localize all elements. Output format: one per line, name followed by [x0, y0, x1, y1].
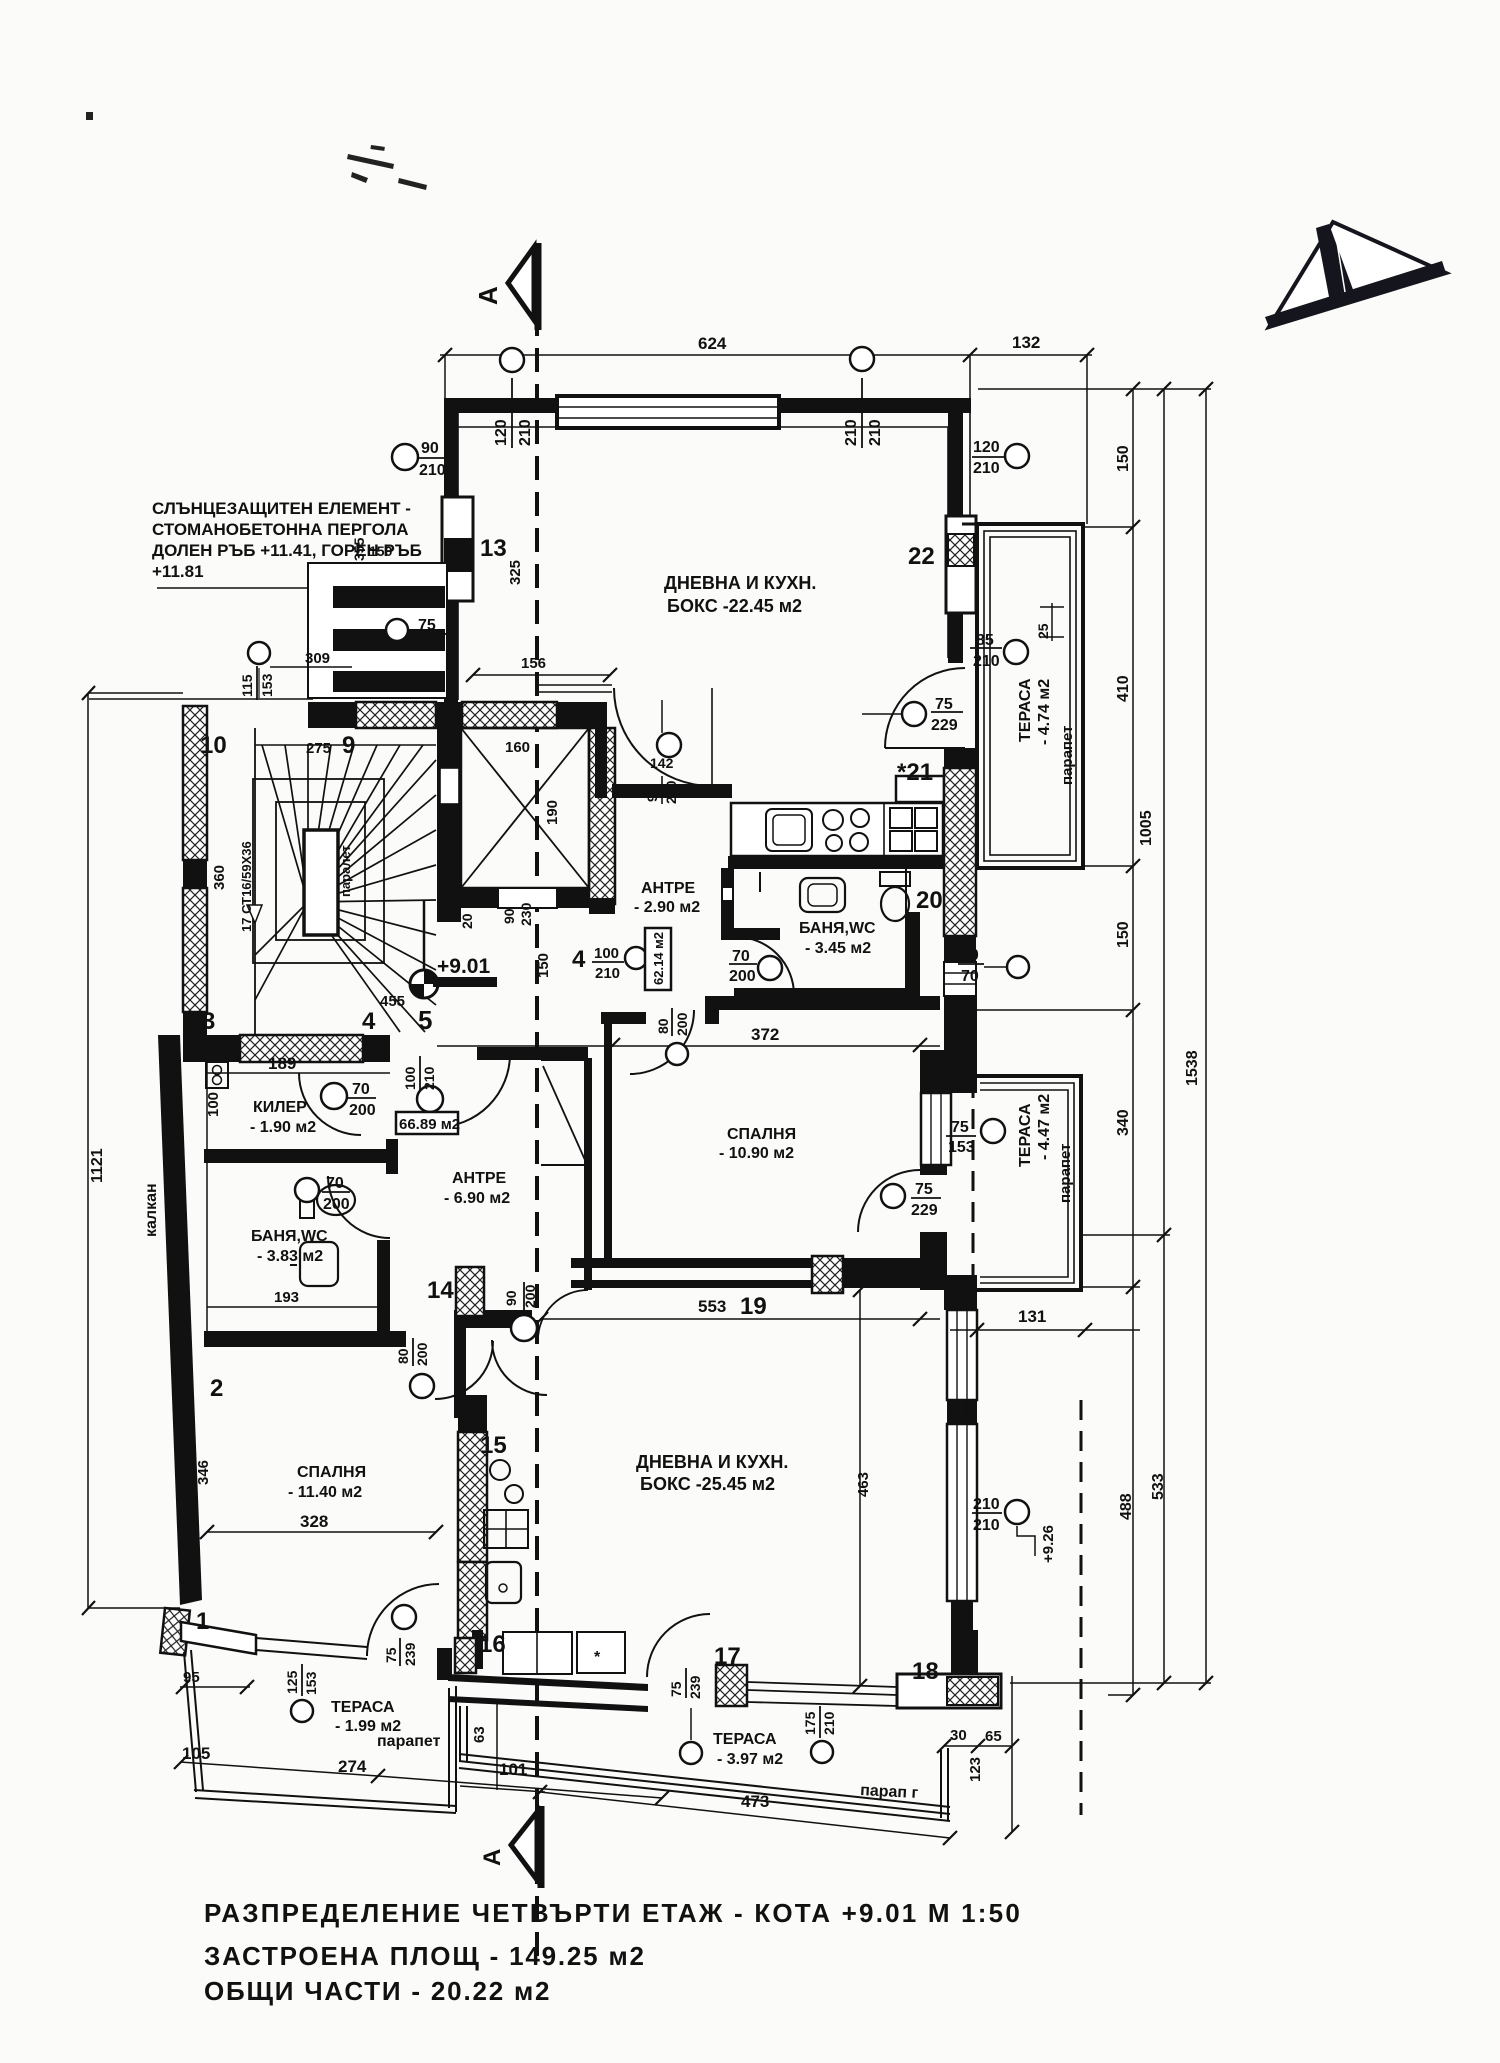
svg-text:488: 488: [1118, 1493, 1135, 1520]
svg-text:парапет: парапет: [1057, 1144, 1074, 1203]
svg-text:14: 14: [427, 1277, 454, 1304]
svg-text:553: 553: [698, 1297, 726, 1316]
svg-text:ТЕРАСА: ТЕРАСА: [1017, 678, 1034, 742]
svg-text:9: 9: [342, 732, 355, 759]
svg-text:ТЕРАСА: ТЕРАСА: [713, 1731, 777, 1748]
svg-text:19: 19: [740, 1293, 767, 1320]
svg-text:463: 463: [855, 1472, 872, 1497]
svg-text:95: 95: [183, 1669, 200, 1686]
svg-text:624: 624: [698, 334, 727, 353]
svg-text:123: 123: [967, 1757, 984, 1782]
svg-text:70: 70: [961, 968, 979, 985]
svg-text:120: 120: [973, 439, 1000, 456]
svg-text:150: 150: [1115, 445, 1132, 472]
svg-text:3: 3: [202, 1008, 215, 1035]
svg-text:372: 372: [751, 1025, 779, 1044]
svg-text:- 1.90 м2: - 1.90 м2: [250, 1119, 316, 1136]
svg-text:210: 210: [595, 965, 620, 982]
svg-text:ТЕРАСА: ТЕРАСА: [1017, 1103, 1034, 1167]
svg-text:70: 70: [326, 1175, 344, 1192]
svg-text:229: 229: [911, 1202, 938, 1219]
svg-text:90: 90: [501, 908, 517, 924]
svg-text:A: A: [473, 286, 503, 305]
svg-text:274: 274: [338, 1757, 367, 1776]
svg-text:473: 473: [741, 1792, 769, 1811]
svg-text:325: 325: [507, 560, 524, 585]
svg-text:153: 153: [948, 1139, 975, 1156]
svg-text:БОКС -22.45 м2: БОКС -22.45 м2: [667, 596, 802, 616]
svg-text:90: 90: [644, 786, 660, 802]
svg-text:275: 275: [306, 740, 331, 757]
svg-text:150: 150: [369, 543, 393, 559]
svg-text:1005: 1005: [1138, 810, 1155, 846]
svg-text:СЛЪНЦЕЗАЩИТЕН ЕЛЕМЕНТ -: СЛЪНЦЕЗАЩИТЕН ЕЛЕМЕНТ -: [152, 499, 411, 518]
svg-text:200: 200: [663, 780, 679, 804]
svg-text:210: 210: [416, 638, 443, 655]
svg-text:17 СТ16/59X36: 17 СТ16/59X36: [239, 841, 254, 932]
svg-text:25: 25: [1035, 623, 1051, 639]
svg-text:80: 80: [655, 1018, 671, 1034]
svg-text:239: 239: [402, 1642, 418, 1666]
svg-text:90: 90: [503, 1290, 519, 1306]
svg-text:+9.01: +9.01: [437, 955, 490, 978]
svg-text:100: 100: [205, 1092, 222, 1117]
svg-text:+11.81: +11.81: [152, 562, 204, 581]
svg-text:63: 63: [471, 1726, 488, 1743]
svg-text:101: 101: [499, 1760, 527, 1779]
svg-text:30: 30: [950, 1727, 967, 1744]
svg-text:АНТРЕ: АНТРЕ: [452, 1170, 507, 1187]
svg-text:153: 153: [303, 1671, 319, 1695]
svg-text:160: 160: [505, 739, 530, 756]
svg-text:ТЕРАСА: ТЕРАСА: [331, 1699, 395, 1716]
svg-text:A: A: [479, 1849, 506, 1866]
svg-text:- 3.45 м2: - 3.45 м2: [805, 940, 871, 957]
svg-text:156: 156: [521, 655, 546, 672]
svg-text:229: 229: [931, 717, 958, 734]
svg-text:СПАЛНЯ: СПАЛНЯ: [297, 1464, 366, 1481]
svg-text:62.14 м2: 62.14 м2: [651, 932, 666, 985]
svg-text:75: 75: [383, 1647, 399, 1663]
svg-text:АНТРЕ: АНТРЕ: [641, 880, 696, 897]
svg-text:- 10.90 м2: - 10.90 м2: [719, 1145, 794, 1162]
svg-text:200: 200: [349, 1102, 376, 1119]
svg-text:210: 210: [973, 1517, 1000, 1534]
svg-text:4: 4: [362, 1008, 376, 1035]
svg-text:паралет: паралет: [338, 845, 353, 897]
svg-text:80: 80: [395, 1348, 411, 1364]
svg-text:75: 75: [418, 617, 436, 634]
svg-text:210: 210: [867, 419, 884, 446]
svg-text:65: 65: [985, 1728, 1002, 1745]
svg-text:105: 105: [182, 1744, 210, 1763]
svg-text:533: 533: [1150, 1473, 1167, 1500]
svg-text:100: 100: [402, 1066, 418, 1090]
svg-text:РАЗПРЕДЕЛЕНИЕ ЧЕТВЪРТИ ЕТАЖ -: РАЗПРЕДЕЛЕНИЕ ЧЕТВЪРТИ ЕТАЖ - КОТА +9.01…: [204, 1898, 1022, 1928]
svg-text:455: 455: [380, 993, 405, 1010]
svg-text:ДНЕВНА И КУХН.: ДНЕВНА И КУХН.: [664, 573, 816, 593]
svg-text:210: 210: [973, 653, 1000, 670]
svg-text:100: 100: [594, 945, 619, 962]
svg-text:210: 210: [973, 460, 1000, 477]
svg-text:210: 210: [517, 419, 534, 446]
svg-text:13: 13: [480, 535, 507, 562]
svg-text:1: 1: [196, 1608, 209, 1635]
svg-text:18: 18: [912, 1658, 939, 1685]
svg-text:200: 200: [323, 1196, 350, 1213]
svg-text:70: 70: [352, 1081, 370, 1098]
svg-text:парапет: парапет: [1059, 726, 1076, 785]
svg-text:СПАЛНЯ: СПАЛНЯ: [727, 1126, 796, 1143]
svg-text:калкан: калкан: [143, 1183, 160, 1237]
svg-text:120: 120: [493, 419, 510, 446]
svg-text:20: 20: [459, 913, 475, 929]
svg-text:20: 20: [916, 887, 943, 914]
svg-text:75: 75: [915, 1181, 933, 1198]
svg-text:4: 4: [572, 946, 586, 973]
svg-text:75: 75: [951, 1119, 969, 1136]
svg-text:210: 210: [973, 1496, 1000, 1513]
svg-text:75: 75: [668, 1681, 684, 1697]
svg-text:340: 340: [1115, 1109, 1132, 1136]
svg-text:150: 150: [535, 953, 552, 978]
svg-text:309: 309: [305, 650, 330, 667]
svg-text:150: 150: [1115, 921, 1132, 948]
svg-text:- 6.90 м2: - 6.90 м2: [444, 1190, 510, 1207]
svg-text:- 11.40 м2: - 11.40 м2: [288, 1484, 362, 1501]
svg-text:16: 16: [479, 1631, 506, 1658]
svg-text:5: 5: [418, 1005, 432, 1035]
svg-text:СТОМАНОБЕТОННА ПЕРГОЛА: СТОМАНОБЕТОННА ПЕРГОЛА: [152, 520, 409, 539]
svg-text:200: 200: [414, 1342, 430, 1366]
svg-text:КИЛЕР: КИЛЕР: [253, 1099, 307, 1116]
svg-text:75: 75: [935, 696, 953, 713]
svg-text:142: 142: [650, 755, 674, 771]
svg-text:132: 132: [1012, 333, 1040, 352]
svg-text:ДНЕВНА И КУХН.: ДНЕВНА И КУХН.: [636, 1452, 788, 1472]
svg-text:22: 22: [908, 543, 935, 570]
svg-text:10: 10: [200, 732, 227, 759]
svg-text:115: 115: [239, 674, 255, 697]
svg-text:328: 328: [300, 1512, 328, 1531]
svg-text:БОКС -25.45 м2: БОКС -25.45 м2: [640, 1474, 775, 1494]
svg-text:193: 193: [274, 1289, 299, 1306]
svg-text:85: 85: [976, 632, 994, 649]
svg-text:200: 200: [674, 1012, 690, 1036]
svg-text:210: 210: [421, 1066, 437, 1090]
svg-text:66.89 м2: 66.89 м2: [399, 1116, 460, 1133]
svg-text:239: 239: [687, 1675, 703, 1699]
svg-text:70: 70: [732, 948, 750, 965]
svg-text:ОБЩИ ЧАСТИ - 20.22 м2: ОБЩИ ЧАСТИ - 20.22 м2: [204, 1976, 551, 2006]
svg-text:+9.26: +9.26: [1040, 1525, 1057, 1563]
svg-text:90: 90: [421, 440, 439, 457]
svg-text:парапет: парапет: [377, 1733, 441, 1750]
svg-text:17: 17: [714, 1643, 741, 1670]
svg-text:200: 200: [729, 968, 756, 985]
svg-text:1538: 1538: [1184, 1050, 1201, 1086]
svg-text:153: 153: [259, 673, 275, 697]
svg-text:ЗАСТРОЕНА ПЛОЩ - 149.25 м2: ЗАСТРОЕНА ПЛОЩ - 149.25 м2: [204, 1941, 646, 1971]
svg-text:- 4.74 м2: - 4.74 м2: [1036, 679, 1053, 745]
svg-text:200: 200: [522, 1284, 538, 1308]
svg-text:210: 210: [419, 462, 446, 479]
svg-text:360: 360: [211, 865, 228, 890]
svg-text:- 4.47 м2: - 4.47 м2: [1036, 1094, 1053, 1160]
svg-text:190: 190: [544, 800, 561, 825]
svg-text:230: 230: [518, 902, 534, 926]
svg-text:410: 410: [1115, 675, 1132, 702]
svg-text:346: 346: [195, 1460, 212, 1485]
svg-text:- 3.83 м2: - 3.83 м2: [257, 1248, 323, 1265]
svg-text:189: 189: [268, 1054, 296, 1073]
svg-text:210: 210: [843, 419, 860, 446]
svg-text:БАНЯ,WC: БАНЯ,WC: [799, 920, 876, 937]
svg-text:125: 125: [284, 1670, 300, 1694]
svg-text:175: 175: [802, 1711, 818, 1735]
svg-text:*: *: [594, 1649, 601, 1666]
svg-text:- 3.97 м2: - 3.97 м2: [717, 1751, 783, 1768]
svg-text:131: 131: [1018, 1307, 1046, 1326]
svg-text:15: 15: [480, 1432, 507, 1459]
svg-text:210: 210: [821, 1711, 837, 1735]
svg-text:- 2.90 м2: - 2.90 м2: [634, 899, 700, 916]
svg-text:1121: 1121: [89, 1148, 106, 1183]
svg-text:2: 2: [210, 1375, 223, 1402]
svg-text:70: 70: [961, 947, 979, 964]
svg-text:355: 355: [351, 537, 367, 561]
svg-text:*21: *21: [897, 759, 933, 786]
